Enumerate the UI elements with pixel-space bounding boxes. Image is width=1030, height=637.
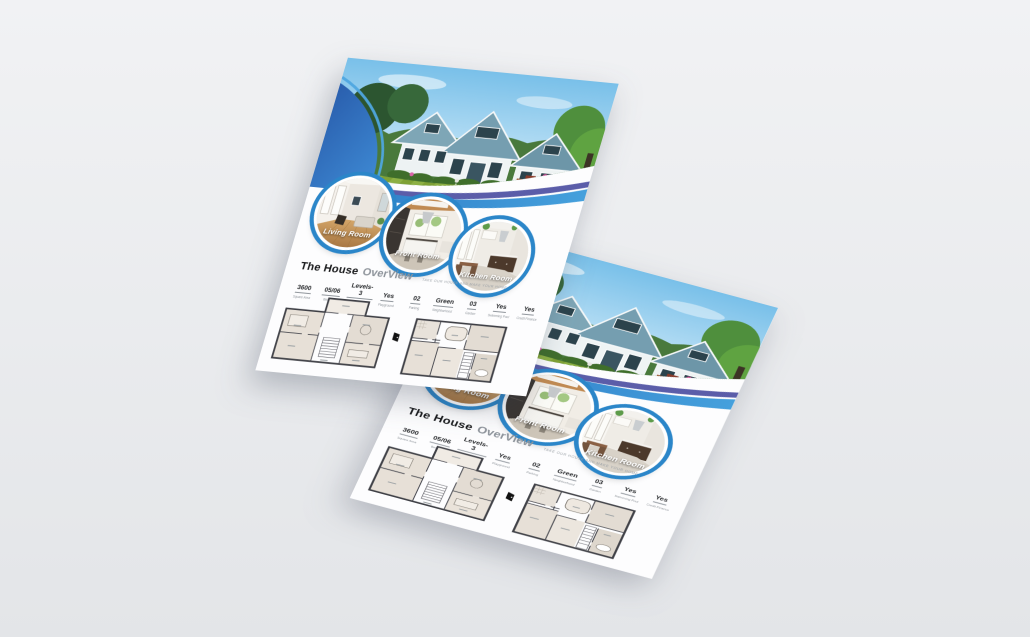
stat-value: 03: [467, 300, 479, 310]
flyer-title: The House: [299, 260, 360, 277]
flyer-title-accent: OverView: [361, 266, 414, 283]
stat-value: 02: [411, 295, 423, 305]
door-icon: [391, 331, 403, 343]
scene-background: Living Room Front Room Kitchen Room The …: [0, 0, 1030, 637]
stat-value: 3600: [295, 284, 314, 294]
stat-value: Yes: [493, 303, 508, 313]
door-icon: [504, 491, 518, 503]
floorplan-level-1: [266, 293, 398, 372]
stat-value: 05/06: [322, 286, 342, 296]
floorplan-level-2: [397, 309, 512, 385]
stat-value: Green: [433, 297, 456, 308]
stat-value: Yes: [521, 306, 536, 316]
stat-value: Levels-3: [346, 282, 377, 300]
stat-value: Yes: [381, 292, 396, 302]
